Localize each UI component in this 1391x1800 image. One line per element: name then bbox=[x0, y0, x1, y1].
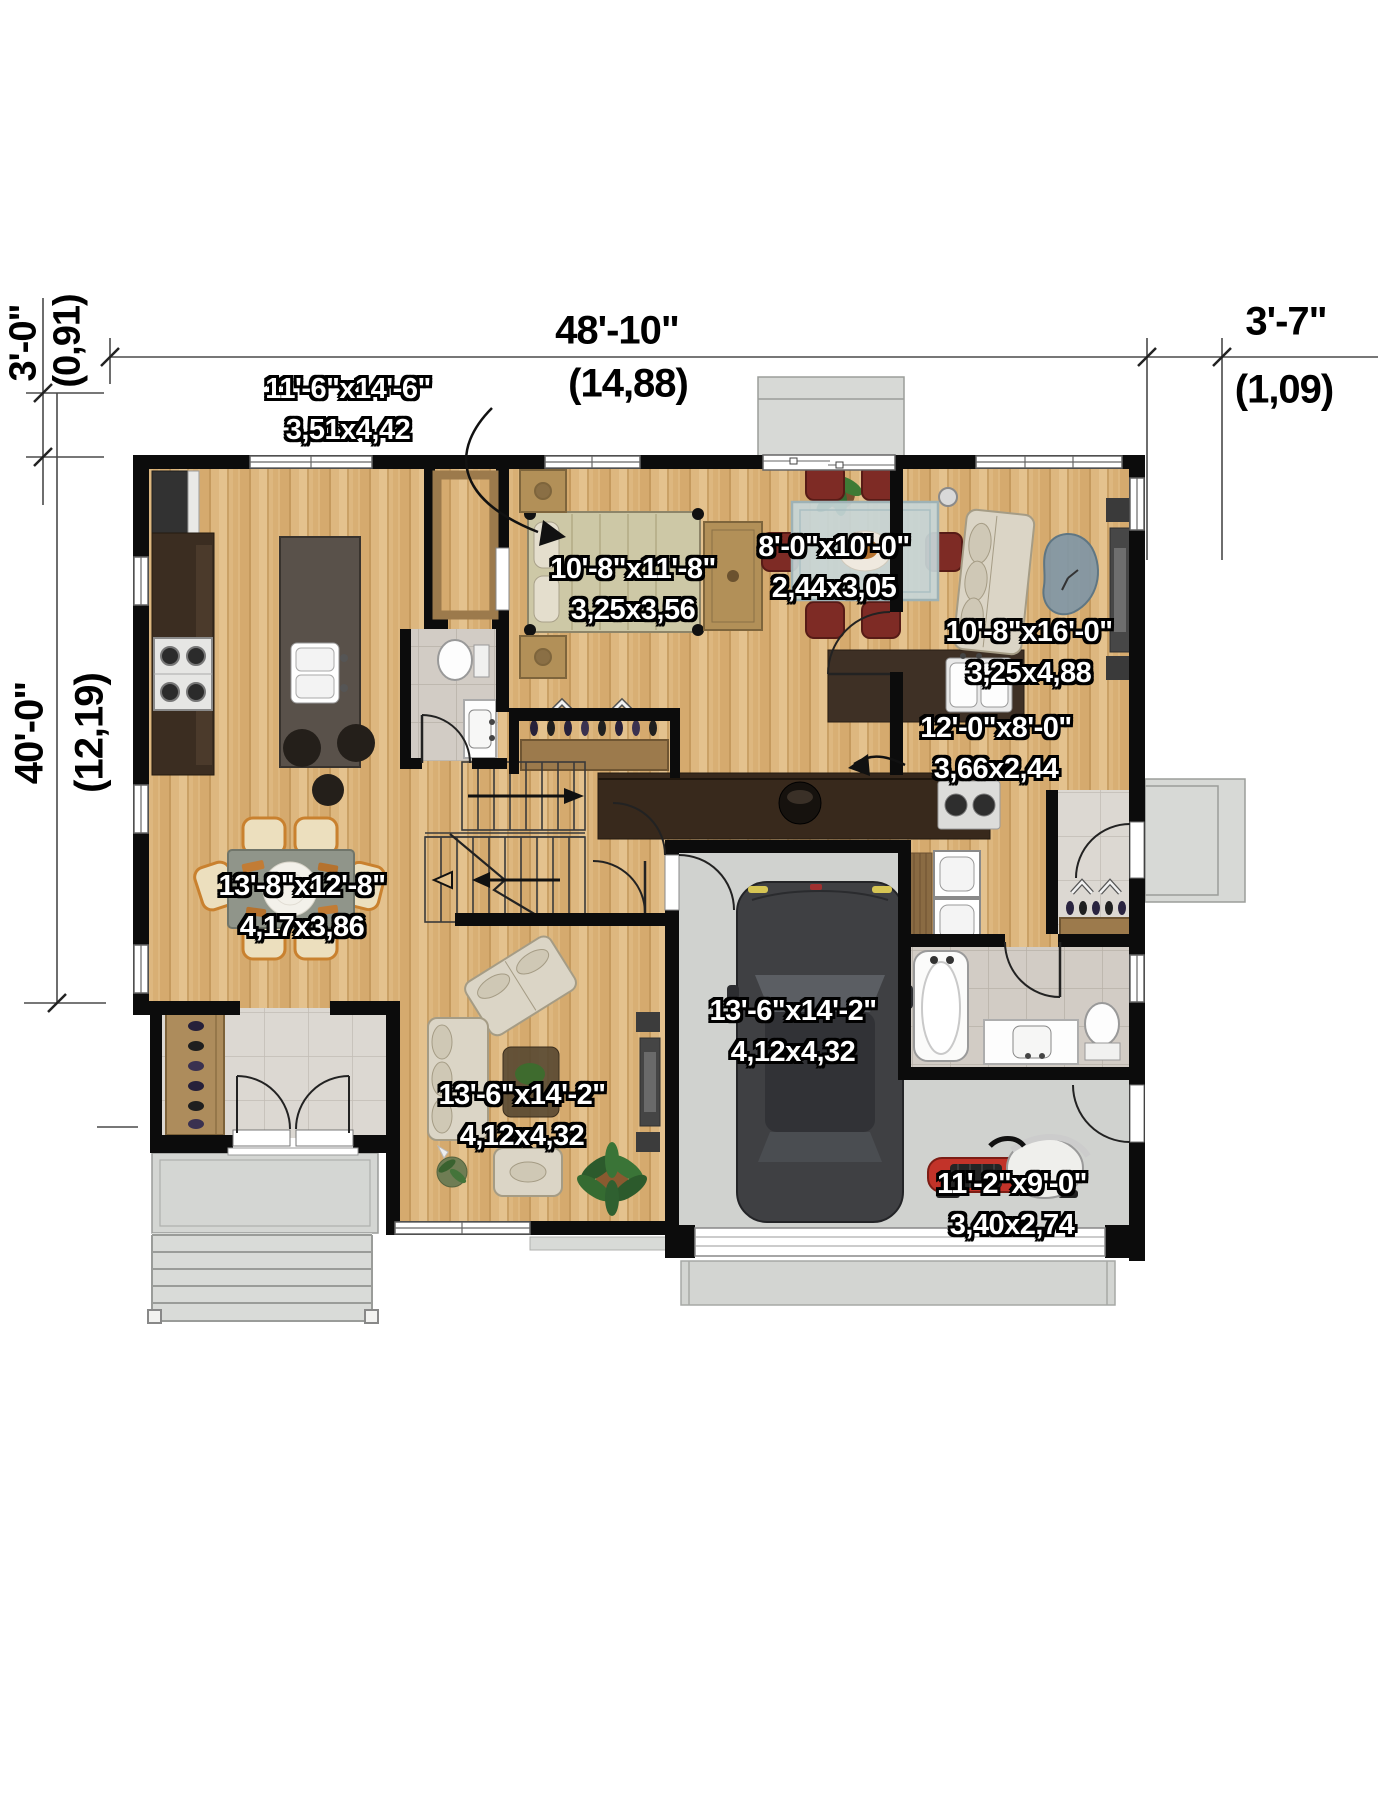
walkin-closet bbox=[437, 475, 494, 615]
room-label-dining-room-metric: 4,17x3,86 bbox=[218, 907, 385, 948]
room-label-kitchen-imperial: 11'-6"x14'-6" bbox=[265, 369, 430, 410]
room-label-living-upper: 10'-8"x16'-0" 3,25x4,88 bbox=[945, 612, 1112, 694]
room-label-garage-imperial: 13'-6"x14'-2" bbox=[709, 991, 876, 1032]
room-label-dining-nook: 8'-0"x10'-0" 2,44x3,05 bbox=[758, 527, 909, 609]
porch-steps bbox=[148, 1233, 378, 1323]
room-label-living-room-metric: 4,12x4,32 bbox=[438, 1116, 605, 1157]
dim-rear-offset-metric: (0,91) bbox=[47, 294, 90, 387]
floor-plan-page: 48'-10" (14,88) 3'-7" (1,09) 3'-0" (0,91… bbox=[0, 0, 1391, 1800]
kitchen-island bbox=[280, 537, 375, 806]
room-label-dining-nook-metric: 2,44x3,05 bbox=[758, 568, 909, 609]
floor-plan-drawing bbox=[0, 0, 1391, 1800]
laundry-appliances bbox=[908, 851, 980, 945]
rear-stoop bbox=[758, 377, 904, 457]
room-label-living-room-imperial: 13'-6"x14'-2" bbox=[438, 1075, 605, 1116]
room-label-kitchen-metric: 3,51x4,42 bbox=[265, 410, 430, 451]
dim-right-offset-imperial: 3'-7" bbox=[1245, 300, 1326, 345]
room-label-kitchen-counter-imperial: 12'-0"x8'-0" bbox=[920, 708, 1071, 749]
room-label-dining-room: 13'-8"x12'-8" 4,17x3,86 bbox=[218, 866, 385, 948]
room-label-bedroom: 10'-8"x11'-8" 3,25x3,56 bbox=[550, 549, 715, 631]
wall-light-icon bbox=[939, 488, 957, 506]
dim-overall-width-metric: (14,88) bbox=[568, 362, 688, 407]
room-label-dining-room-imperial: 13'-8"x12'-8" bbox=[218, 866, 385, 907]
room-label-living-upper-imperial: 10'-8"x16'-0" bbox=[945, 612, 1112, 653]
side-stoop bbox=[1145, 779, 1245, 902]
room-label-storage: 11'-2"x9'-0" 3,40x2,74 bbox=[937, 1164, 1087, 1246]
range-stove-icon bbox=[154, 638, 212, 710]
room-label-kitchen: 11'-6"x14'-6" 3,51x4,42 bbox=[265, 369, 430, 451]
refrigerator-icon bbox=[152, 471, 199, 533]
room-label-kitchen-counter: 12'-0"x8'-0" 3,66x2,44 bbox=[920, 708, 1071, 790]
room-label-garage: 13'-6"x14'-2" 4,12x4,32 bbox=[709, 991, 876, 1073]
room-label-bedroom-imperial: 10'-8"x11'-8" bbox=[550, 549, 715, 590]
room-label-storage-metric: 3,40x2,74 bbox=[937, 1205, 1087, 1246]
patio-door-icon bbox=[763, 455, 895, 470]
entry-closet bbox=[166, 1013, 224, 1135]
room-label-bedroom-metric: 3,25x3,56 bbox=[550, 590, 715, 631]
room-label-kitchen-counter-metric: 3,66x2,44 bbox=[920, 749, 1071, 790]
room-label-garage-metric: 4,12x4,32 bbox=[709, 1032, 876, 1073]
dim-right-offset-metric: (1,09) bbox=[1235, 368, 1334, 413]
dim-overall-width-imperial: 48'-10" bbox=[555, 309, 679, 354]
front-porch bbox=[152, 1153, 378, 1233]
dim-overall-depth-metric: (12,19) bbox=[68, 673, 113, 793]
room-label-living-upper-metric: 3,25x4,88 bbox=[945, 653, 1112, 694]
room-label-living-room: 13'-6"x14'-2" 4,12x4,32 bbox=[438, 1075, 605, 1157]
dim-overall-depth-imperial: 40'-0" bbox=[8, 682, 53, 785]
room-label-storage-imperial: 11'-2"x9'-0" bbox=[937, 1164, 1087, 1205]
room-label-dining-nook-imperial: 8'-0"x10'-0" bbox=[758, 527, 909, 568]
dim-rear-offset-imperial: 3'-0" bbox=[3, 305, 46, 382]
